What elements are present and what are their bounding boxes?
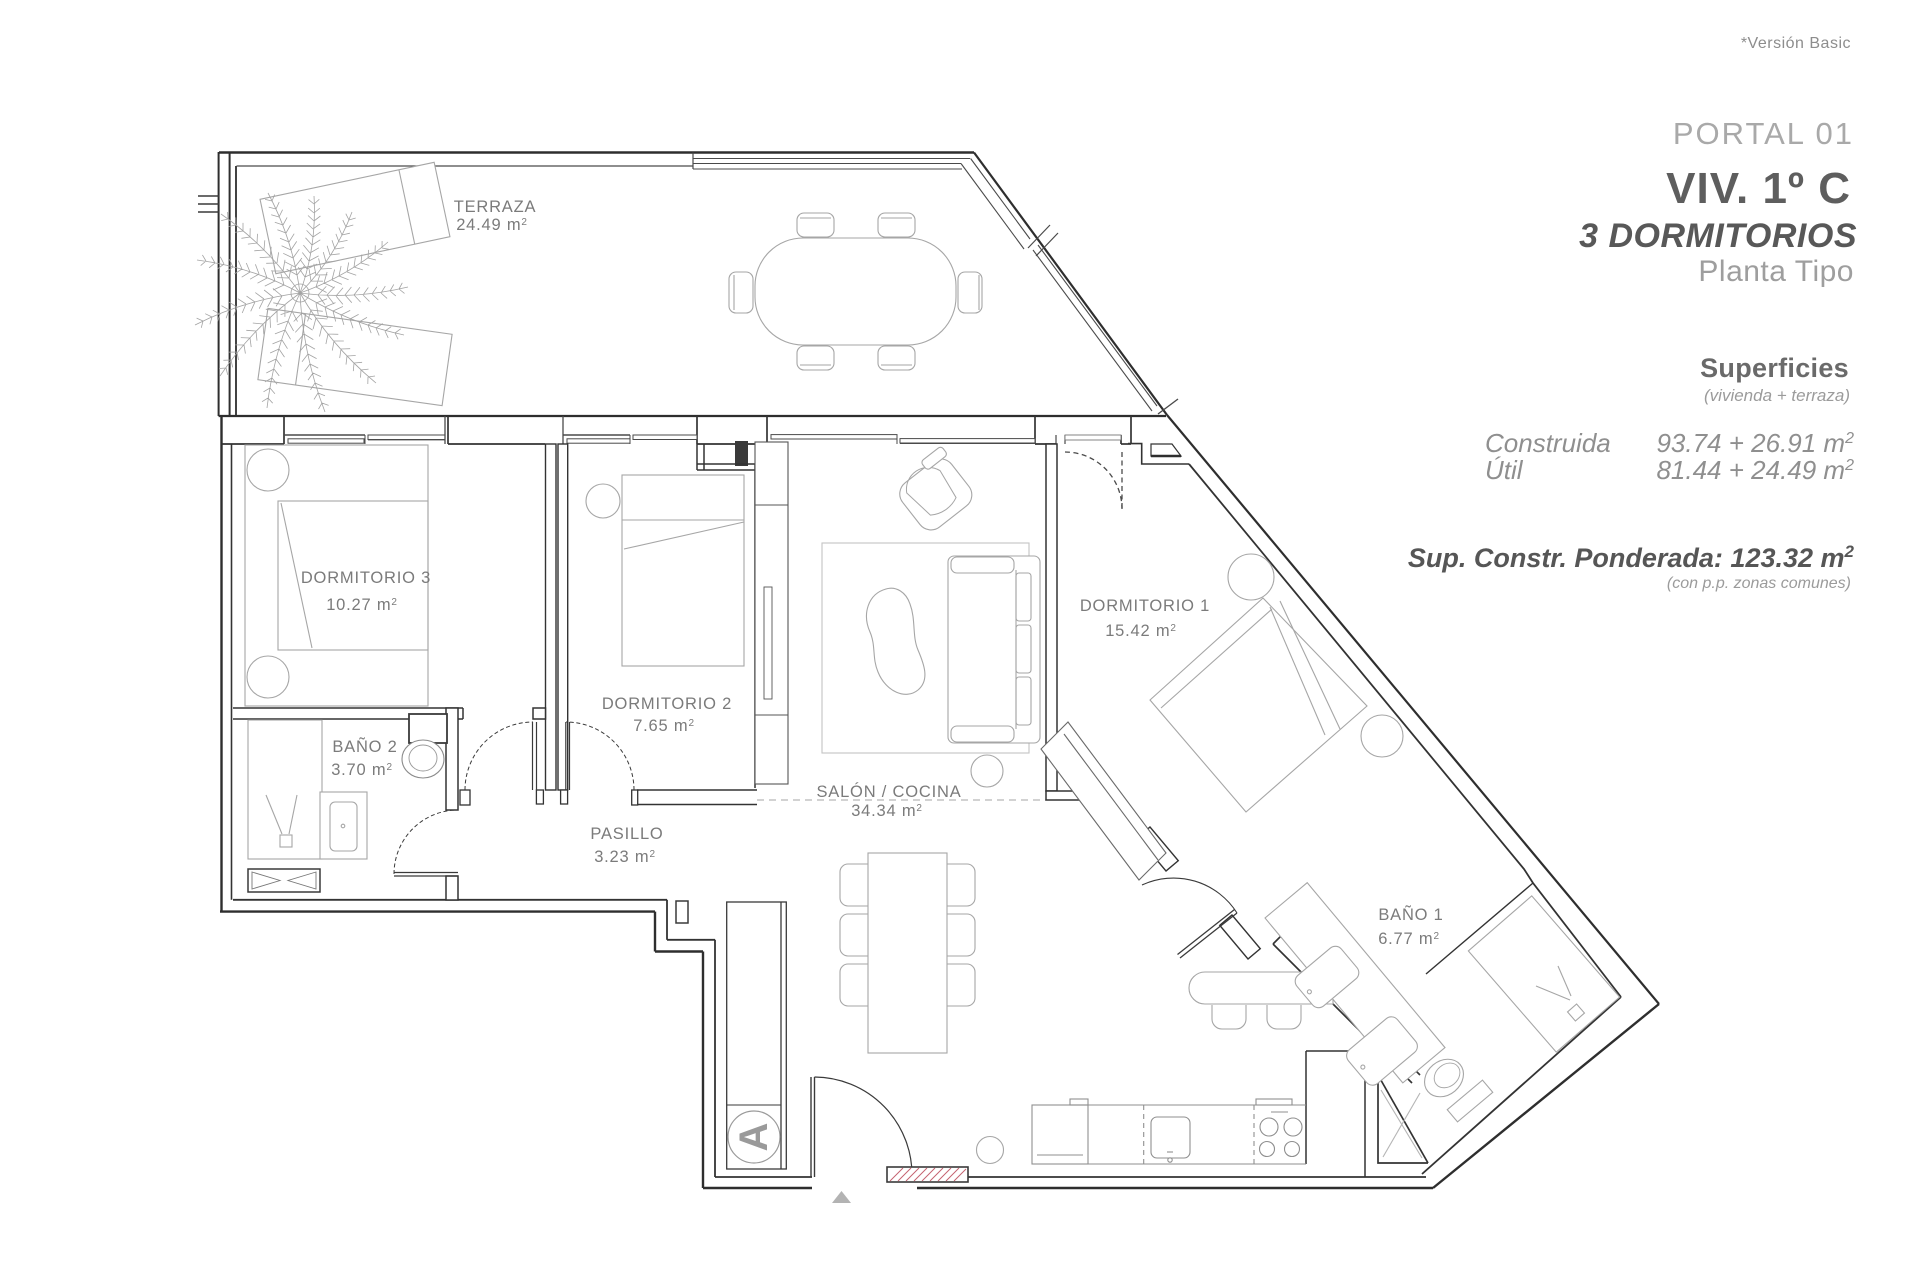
svg-text:81.44 + 24.49 m2: 81.44 + 24.49 m2 [1656,455,1854,485]
svg-text:Sup. Constr. Ponderada: 123.32: Sup. Constr. Ponderada: 123.32 m2 [1408,542,1855,573]
svg-text:SALÓN / COCINA: SALÓN / COCINA [816,782,961,801]
svg-text:7.65 m2: 7.65 m2 [633,717,695,735]
svg-text:Superficies: Superficies [1700,353,1849,383]
svg-text:Construida: Construida [1485,428,1611,458]
svg-text:PORTAL 01: PORTAL 01 [1673,116,1854,151]
svg-text:34.34 m2: 34.34 m2 [851,802,923,820]
svg-text:DORMITORIO 2: DORMITORIO 2 [602,695,732,713]
svg-text:*Versión Basic: *Versión Basic [1741,35,1851,52]
svg-text:VIV. 1º C: VIV. 1º C [1666,164,1851,213]
svg-text:(con p.p. zonas comunes): (con p.p. zonas comunes) [1667,575,1851,592]
svg-text:3 DORMITORIOS: 3 DORMITORIOS [1579,217,1857,255]
svg-text:Planta Tipo: Planta Tipo [1698,255,1854,288]
svg-text:PASILLO: PASILLO [590,825,663,843]
svg-text:TERRAZA: TERRAZA [454,198,537,216]
svg-text:93.74 + 26.91 m2: 93.74 + 26.91 m2 [1656,428,1854,458]
svg-text:(vivienda + terraza): (vivienda + terraza) [1704,386,1850,405]
svg-text:DORMITORIO 1: DORMITORIO 1 [1080,597,1210,615]
svg-text:3.23 m2: 3.23 m2 [594,848,656,866]
svg-text:DORMITORIO 3: DORMITORIO 3 [301,569,431,587]
svg-text:24.49 m2: 24.49 m2 [456,216,528,234]
svg-text:A: A [732,1123,776,1152]
svg-text:6.77 m2: 6.77 m2 [1378,930,1440,948]
svg-text:BAÑO 1: BAÑO 1 [1378,904,1443,924]
svg-text:BAÑO 2: BAÑO 2 [332,736,397,756]
svg-text:15.42 m2: 15.42 m2 [1105,622,1177,640]
svg-text:Útil: Útil [1485,455,1524,485]
svg-text:3.70 m2: 3.70 m2 [331,761,393,779]
svg-text:10.27 m2: 10.27 m2 [326,596,398,614]
